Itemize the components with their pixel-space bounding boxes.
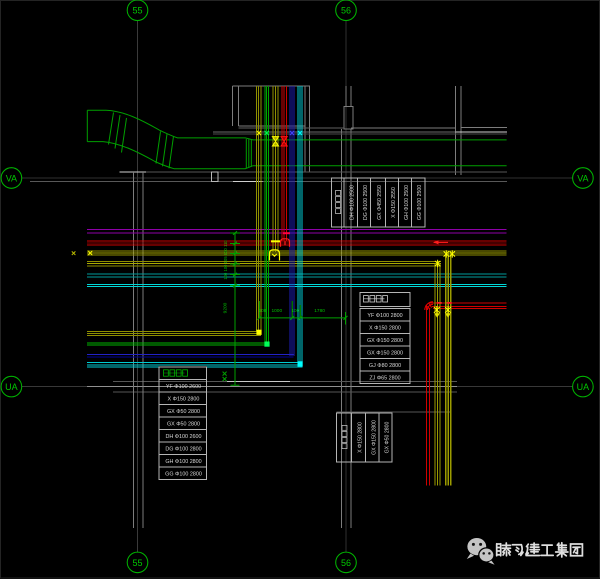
svg-text:UA: UA	[577, 382, 590, 392]
svg-text:GX Φ50 2800: GX Φ50 2800	[384, 421, 390, 453]
svg-text:X Φ150 2800: X Φ150 2800	[168, 396, 200, 402]
svg-text:UA: UA	[5, 382, 18, 392]
svg-text:100 100 105 100 110: 100 100 105 100 110	[223, 240, 228, 280]
svg-text:GX Φ150 2800: GX Φ150 2800	[371, 420, 377, 455]
svg-text:9200: 9200	[222, 302, 228, 313]
svg-text:VA: VA	[577, 173, 588, 183]
svg-text:VA: VA	[6, 173, 17, 183]
svg-text:GG Φ100 2500: GG Φ100 2500	[417, 185, 423, 220]
svg-text:GH Φ100 2500: GH Φ100 2500	[404, 185, 410, 220]
svg-text:GX Φ150 2800: GX Φ150 2800	[367, 338, 403, 344]
svg-text:1780: 1780	[314, 308, 325, 314]
svg-text:100: 100	[291, 308, 299, 313]
svg-text:56: 56	[341, 558, 351, 568]
svg-text:GJ Φ80 2800: GJ Φ80 2800	[369, 363, 401, 369]
svg-text:GX Φ50 2800: GX Φ50 2800	[167, 421, 200, 427]
svg-text:GX Φ450 2550: GX Φ450 2550	[377, 185, 383, 220]
svg-text:YF Φ100 2800: YF Φ100 2800	[367, 313, 402, 319]
svg-text:DH Φ100 2500: DH Φ100 2500	[350, 185, 356, 220]
svg-text:56: 56	[341, 6, 351, 16]
svg-text:GX Φ50 2800: GX Φ50 2800	[167, 409, 200, 415]
svg-text:55: 55	[132, 6, 142, 16]
svg-text:X Φ150 2550: X Φ150 2550	[391, 187, 397, 218]
svg-text:1000: 1000	[271, 308, 282, 314]
svg-text:GH Φ100 2800: GH Φ100 2800	[165, 459, 201, 465]
svg-text:DH Φ100 2600: DH Φ100 2600	[165, 434, 201, 440]
svg-text:55: 55	[132, 558, 142, 568]
svg-text:YF Φ100 2600: YF Φ100 2600	[166, 384, 201, 390]
svg-text:GG Φ100 2800: GG Φ100 2800	[165, 471, 202, 477]
svg-text:X Φ150 2800: X Φ150 2800	[369, 326, 401, 332]
svg-text:GX Φ150 2800: GX Φ150 2800	[367, 351, 403, 357]
svg-text:X Φ150 2800: X Φ150 2800	[358, 422, 364, 453]
svg-text:ZJ Φ65 2800: ZJ Φ65 2800	[369, 376, 400, 382]
svg-text:DG Φ100 2800: DG Φ100 2800	[165, 446, 201, 452]
svg-text:DG Φ100 2500: DG Φ100 2500	[363, 185, 369, 220]
svg-text:100: 100	[259, 308, 267, 313]
